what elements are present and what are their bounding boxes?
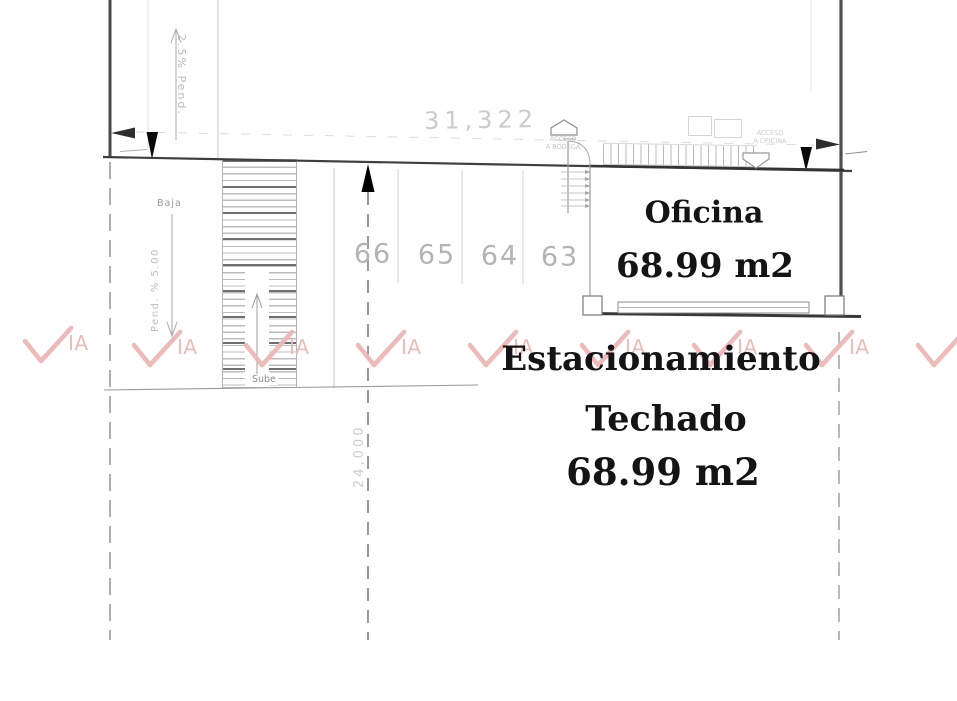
via-watermark: IA xyxy=(14,320,100,364)
covered-parking-label-line2: Techado xyxy=(585,399,747,440)
step-annotations xyxy=(561,172,585,206)
step-annotation-arrows xyxy=(585,170,591,208)
dimension-arrow-right xyxy=(816,139,840,150)
ramp-up-label: Sube xyxy=(250,374,278,385)
office-bottom-wall xyxy=(585,314,861,317)
acceso-bodega-arrow-icon xyxy=(551,120,577,135)
via-check-icon xyxy=(246,332,292,365)
ground-tick-right xyxy=(845,152,867,155)
covered-parking-label-line1: Estacionamiento xyxy=(501,339,820,379)
via-check-icon xyxy=(358,332,404,365)
dimension-arrow-left xyxy=(111,128,135,139)
stall-number-64: 64 xyxy=(481,241,519,272)
width-dimension-label: 31,322 xyxy=(424,105,538,135)
ramp-down-label: Baja xyxy=(157,198,182,209)
column-right xyxy=(825,296,844,315)
via-check-icon xyxy=(918,332,957,365)
via-watermark-text: IA xyxy=(177,335,198,359)
office-window-band xyxy=(618,302,809,313)
slope-left-label: Pend. % 5.00 xyxy=(150,216,161,332)
slope-top-label: 2.5% Pend. xyxy=(175,34,188,146)
window-detail-box xyxy=(688,116,712,136)
plumb-arrow-right xyxy=(801,147,813,171)
via-watermark: IA xyxy=(914,324,957,368)
plumb-arrow-left xyxy=(147,132,159,159)
via-watermark-text: IA xyxy=(401,335,422,359)
ground-tick-left xyxy=(120,150,147,152)
via-watermark: IA xyxy=(354,324,426,368)
via-watermark-text: IA xyxy=(289,335,310,359)
via-watermark: IA xyxy=(242,324,314,368)
storefront-window-hatch xyxy=(603,143,757,167)
stall-number-65: 65 xyxy=(418,240,456,271)
via-check-icon xyxy=(25,328,71,361)
acceso-bodega-label: ACCESO A BODEGA xyxy=(532,135,594,151)
acceso-oficina-label: ACCESO A OFICINA xyxy=(738,129,802,145)
stall-number-63: 63 xyxy=(541,242,579,273)
stall-number-66: 66 xyxy=(354,239,392,270)
covered-parking-area-label: 68.99 m2 xyxy=(566,450,760,494)
office-name-label: Oficina xyxy=(645,196,764,231)
floor-plan-canvas: 31,322 2.5% Pend. Pend. % 5.00 24,000 Ba… xyxy=(0,0,957,701)
via-check-icon xyxy=(134,332,180,365)
via-watermark: IA xyxy=(130,324,202,368)
plumb-arrow-center xyxy=(362,164,375,192)
column-left xyxy=(583,296,602,315)
via-watermark-text: IA xyxy=(849,335,870,359)
depth-dimension-label: 24,000 xyxy=(352,386,367,488)
via-watermark-text: IA xyxy=(68,331,89,355)
office-area-label: 68.99 m2 xyxy=(616,246,794,286)
